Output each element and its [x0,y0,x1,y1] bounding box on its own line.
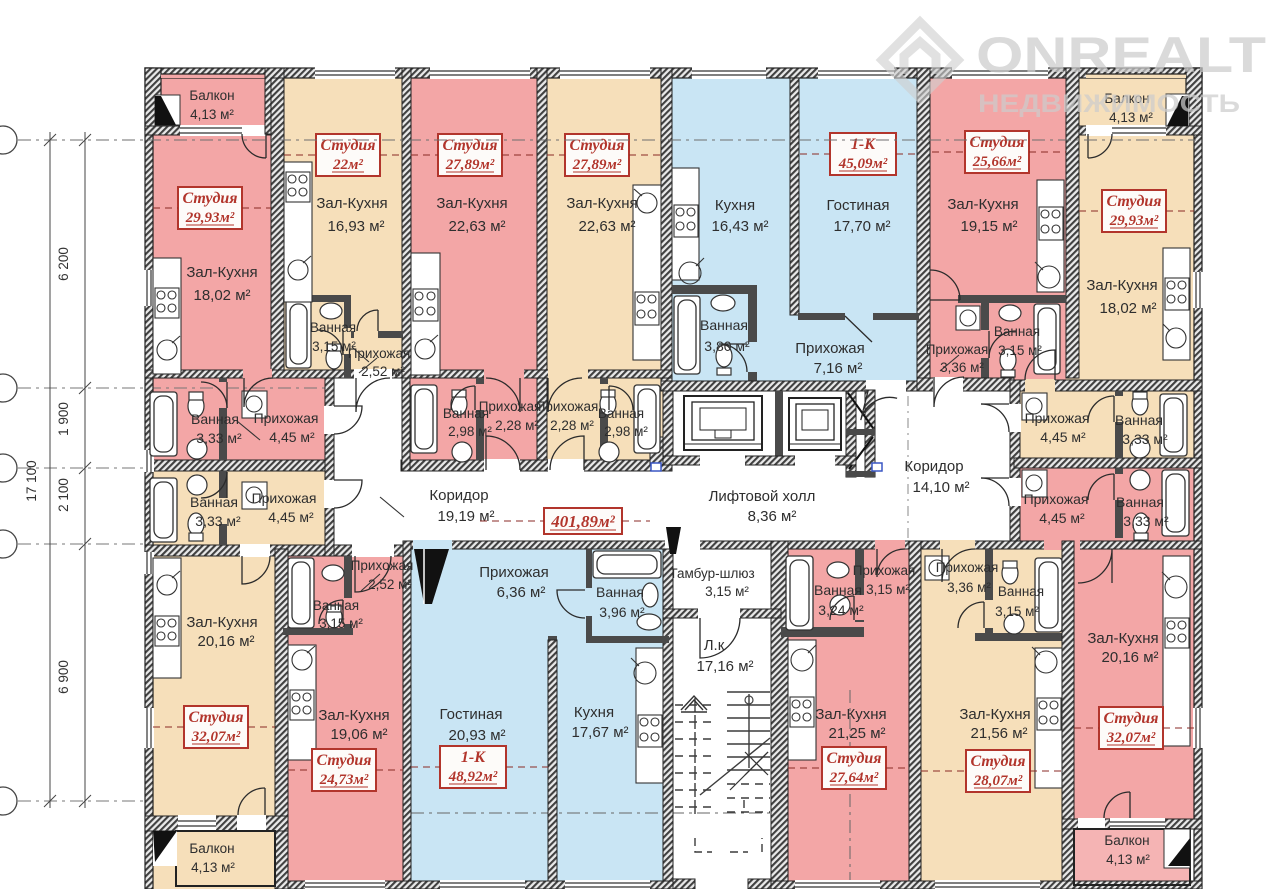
svg-text:Зал-Кухня: Зал-Кухня [815,706,886,723]
svg-text:3,33 м²: 3,33 м² [1123,513,1169,529]
svg-text:НЕДВИЖИМОСТЬ: НЕДВИЖИМОСТЬ [978,90,1240,118]
svg-text:19,19 м²: 19,19 м² [437,508,494,525]
svg-text:Прихожая: Прихожая [252,490,317,506]
svg-text:Прихожая: Прихожая [348,346,411,361]
svg-text:Гостиная: Гостиная [827,197,890,214]
svg-text:19,15 м²: 19,15 м² [960,218,1017,235]
svg-text:32,07м²: 32,07м² [1106,730,1156,746]
svg-text:27,89м²: 27,89м² [445,157,495,173]
svg-text:17,16 м²: 17,16 м² [696,658,753,675]
svg-text:4,13 м²: 4,13 м² [191,860,235,875]
svg-text:3,15 м²: 3,15 м² [866,582,910,597]
svg-text:Зал-Кухня: Зал-Кухня [959,706,1030,723]
svg-text:6 900: 6 900 [56,660,71,694]
svg-text:Зал-Кухня: Зал-Кухня [186,264,257,281]
svg-text:8,36 м²: 8,36 м² [748,508,797,525]
svg-text:32,07м²: 32,07м² [191,729,241,745]
svg-text:29,93м²: 29,93м² [185,210,235,226]
svg-text:Зал-Кухня: Зал-Кухня [1086,277,1157,294]
svg-text:Студия: Студия [826,750,881,767]
svg-text:Ванная: Ванная [191,411,239,427]
svg-text:2,98 м²: 2,98 м² [604,424,648,439]
svg-text:19,06 м²: 19,06 м² [330,726,387,743]
svg-text:3,33 м²: 3,33 м² [196,430,242,446]
svg-text:Зал-Кухня: Зал-Кухня [436,195,507,212]
svg-text:Ванная: Ванная [598,406,644,421]
svg-text:Балкон: Балкон [189,841,234,856]
svg-text:Балкон: Балкон [189,88,234,103]
svg-text:Зал-Кухня: Зал-Кухня [947,196,1018,213]
svg-text:3,33 м²: 3,33 м² [1122,431,1168,447]
svg-text:Лифтовой холл: Лифтовой холл [709,488,816,505]
svg-text:Ванная: Ванная [994,324,1040,339]
svg-text:Ванная: Ванная [1115,412,1163,428]
svg-text:18,02 м²: 18,02 м² [1099,300,1156,317]
svg-text:4,45 м²: 4,45 м² [1040,429,1086,445]
svg-text:7,16 м²: 7,16 м² [814,360,863,377]
svg-text:Прихожая: Прихожая [795,340,865,357]
svg-text:Прихожая: Прихожая [853,563,916,578]
svg-text:Студия: Студия [969,134,1024,151]
svg-text:20,16 м²: 20,16 м² [197,633,254,650]
svg-text:Кухня: Кухня [715,197,755,214]
svg-text:1-К: 1-К [851,136,876,153]
svg-text:Балкон: Балкон [1104,833,1149,848]
svg-text:Ванная: Ванная [998,584,1044,599]
svg-text:2,28 м²: 2,28 м² [550,418,594,433]
svg-text:48,92м²: 48,92м² [448,769,498,785]
svg-text:Прихожая: Прихожая [479,564,549,581]
svg-text:Студия: Студия [182,190,237,207]
svg-text:Прихожая: Прихожая [936,560,999,575]
svg-text:21,25 м²: 21,25 м² [828,725,885,742]
svg-text:21,56 м²: 21,56 м² [970,725,1027,742]
svg-text:27,64м²: 27,64м² [829,770,879,786]
svg-text:Студия: Студия [316,752,371,769]
svg-text:2,52 м²: 2,52 м² [361,364,405,379]
svg-text:22,63 м²: 22,63 м² [448,218,505,235]
svg-text:17 100: 17 100 [24,460,39,501]
svg-text:4,45 м²: 4,45 м² [269,429,315,445]
svg-text:27,89м²: 27,89м² [572,157,622,173]
svg-text:4,45 м²: 4,45 м² [268,509,314,525]
svg-text:17,70 м²: 17,70 м² [833,218,890,235]
svg-text:2,98 м²: 2,98 м² [448,424,492,439]
svg-text:Зал-Кухня: Зал-Кухня [186,614,257,631]
svg-text:Зал-Кухня: Зал-Кухня [318,707,389,724]
svg-text:3,15 м²: 3,15 м² [998,343,1042,358]
svg-text:28,07м²: 28,07м² [973,773,1023,789]
svg-text:16,43 м²: 16,43 м² [711,218,768,235]
svg-text:Ванная: Ванная [700,317,748,333]
svg-text:Ванная: Ванная [313,598,359,613]
svg-text:6 200: 6 200 [56,247,71,281]
svg-text:Прихожая: Прихожая [536,399,599,414]
svg-text:Ванная: Ванная [814,582,862,598]
svg-text:3,80 м²: 3,80 м² [704,338,750,354]
svg-text:3,96 м²: 3,96 м² [599,604,645,620]
svg-text:1 900: 1 900 [56,402,71,436]
svg-text:20,16 м²: 20,16 м² [1101,649,1158,666]
svg-text:3,36 м²: 3,36 м² [940,360,984,375]
svg-text:20,93 м²: 20,93 м² [448,727,505,744]
svg-text:Зал-Кухня: Зал-Кухня [316,195,387,212]
svg-text:4,13 м²: 4,13 м² [190,107,234,122]
svg-text:Прихожая: Прихожая [479,399,542,414]
svg-text:Ванная: Ванная [310,320,356,335]
svg-text:Ванная: Ванная [596,584,644,600]
svg-text:Кухня: Кухня [574,704,614,721]
svg-text:3,33 м²: 3,33 м² [195,513,241,529]
svg-text:3,24 м²: 3,24 м² [818,602,864,618]
svg-text:3,15 м²: 3,15 м² [995,604,1039,619]
svg-text:3,36 м²: 3,36 м² [947,580,991,595]
svg-text:45,09м²: 45,09м² [838,156,888,172]
svg-text:Тамбур-шлюз: Тамбур-шлюз [669,566,754,581]
svg-text:401,89м²: 401,89м² [550,512,615,531]
svg-text:14,10 м²: 14,10 м² [912,479,969,496]
svg-text:Л.к: Л.к [704,637,725,654]
svg-text:Коридор: Коридор [429,487,488,504]
svg-text:6,36 м²: 6,36 м² [497,584,546,601]
svg-text:Студия: Студия [1106,193,1161,210]
svg-text:29,93м²: 29,93м² [1109,213,1159,229]
svg-text:Прихожая: Прихожая [1025,410,1090,426]
svg-text:Гостиная: Гостиная [440,706,503,723]
svg-text:4,45 м²: 4,45 м² [1039,510,1085,526]
svg-text:Ванная: Ванная [190,494,238,510]
svg-text:Прихожая: Прихожая [351,558,414,573]
svg-text:25,66м²: 25,66м² [972,154,1022,170]
svg-text:ONREALT: ONREALT [976,27,1266,83]
svg-text:Ванная: Ванная [1116,494,1164,510]
svg-text:24,73м²: 24,73м² [319,772,369,788]
svg-text:Прихожая: Прихожая [1024,491,1089,507]
svg-text:Студия: Студия [188,709,243,726]
svg-text:22,63 м²: 22,63 м² [578,218,635,235]
svg-text:2 100: 2 100 [56,478,71,512]
svg-text:18,02 м²: 18,02 м² [193,287,250,304]
svg-text:2,28 м²: 2,28 м² [495,418,539,433]
svg-text:3,15 м²: 3,15 м² [705,584,749,599]
svg-text:Прихожая: Прихожая [926,342,989,357]
svg-text:1-К: 1-К [461,749,486,766]
svg-text:Студия: Студия [1103,710,1158,727]
svg-text:2,52 м²: 2,52 м² [368,577,412,592]
svg-text:Зал-Кухня: Зал-Кухня [1087,630,1158,647]
svg-text:Зал-Кухня: Зал-Кухня [566,195,637,212]
svg-text:Прихожая: Прихожая [254,410,319,426]
svg-text:17,67 м²: 17,67 м² [571,724,628,741]
svg-text:Коридор: Коридор [904,458,963,475]
svg-text:4,13 м²: 4,13 м² [1106,852,1150,867]
svg-text:22м²: 22м² [332,157,363,173]
svg-text:Студия: Студия [970,753,1025,770]
svg-text:3,15 м²: 3,15 м² [319,616,363,631]
svg-text:16,93 м²: 16,93 м² [327,218,384,235]
